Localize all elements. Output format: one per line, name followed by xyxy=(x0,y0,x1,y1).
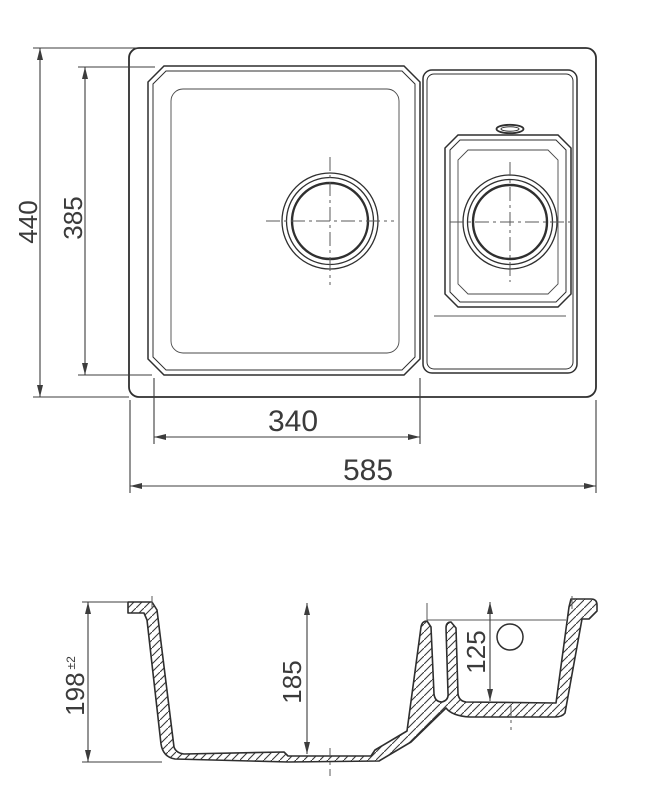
drawing-canvas: 440 385 340 585 xyxy=(0,0,661,800)
dim-label-198: 198±2 xyxy=(60,656,90,716)
plan-dimension-labels: 440 385 340 585 xyxy=(13,196,393,487)
small-bowl-back-hole xyxy=(497,624,523,650)
dim-label-340: 340 xyxy=(268,405,318,438)
small-drain-centerlines xyxy=(450,162,570,282)
section-back-edges xyxy=(152,596,572,620)
dim-label-125: 125 xyxy=(461,630,491,673)
main-drain-centerlines xyxy=(266,157,394,285)
main-bowl-drain xyxy=(266,157,394,285)
section-view: 198±2 185 125 xyxy=(60,596,597,776)
sink-technical-drawing: 440 385 340 585 xyxy=(0,0,661,800)
section-cut-material xyxy=(128,599,597,762)
dim-label-440: 440 xyxy=(13,200,43,243)
plan-view xyxy=(129,48,596,397)
dim-bowl-height-385 xyxy=(78,67,155,375)
dim-label-585: 585 xyxy=(343,454,393,487)
small-bowl-drain xyxy=(450,162,570,282)
tap-hole-oval xyxy=(497,125,524,133)
dim-label-185: 185 xyxy=(277,660,307,703)
dim-label-385: 385 xyxy=(58,196,88,239)
